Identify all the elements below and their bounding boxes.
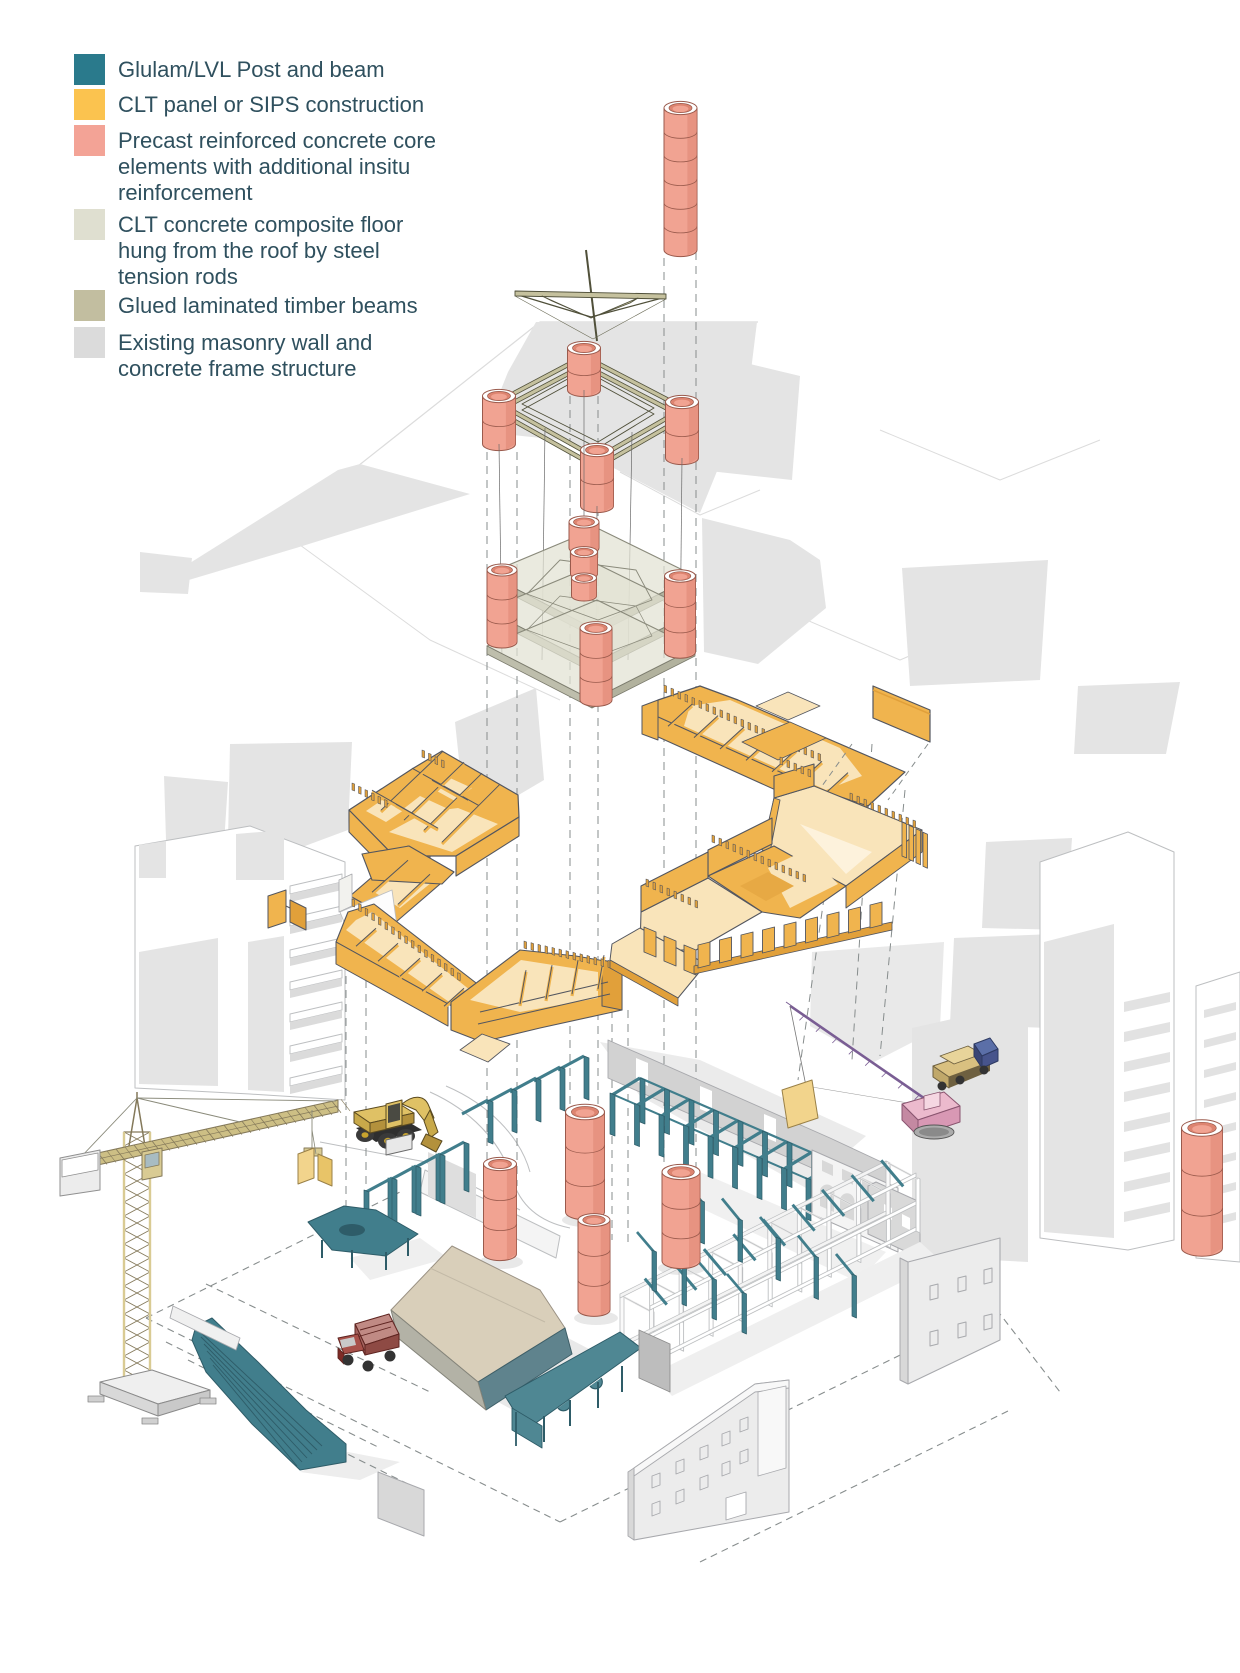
svg-text:Glulam/LVL Post and beam: Glulam/LVL Post and beam xyxy=(118,57,385,82)
svg-text:Glued laminated timber beams: Glued laminated timber beams xyxy=(118,293,418,318)
svg-text:CLT concrete composite floor: CLT concrete composite floor xyxy=(118,212,403,237)
svg-text:Existing masonry wall and: Existing masonry wall and xyxy=(118,330,372,355)
svg-text:reinforcement: reinforcement xyxy=(118,180,253,205)
svg-text:concrete frame structure: concrete frame structure xyxy=(118,356,356,381)
svg-text:tension rods: tension rods xyxy=(118,264,238,289)
svg-text:Precast reinforced concrete co: Precast reinforced concrete core xyxy=(118,128,436,153)
svg-text:elements with additional insit: elements with additional insitu xyxy=(118,154,410,179)
svg-text:CLT panel or SIPS construction: CLT panel or SIPS construction xyxy=(118,92,424,117)
svg-text:hung from the roof by steel: hung from the roof by steel xyxy=(118,238,380,263)
